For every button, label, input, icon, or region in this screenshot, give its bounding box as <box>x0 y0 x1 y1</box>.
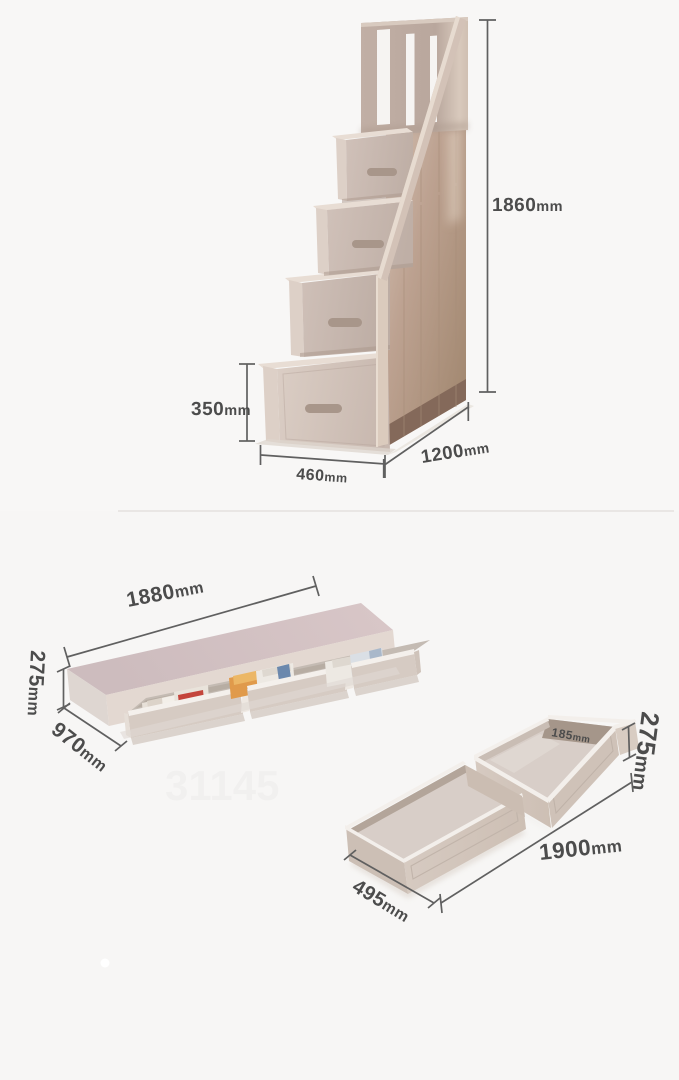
svg-text:1860mm: 1860mm <box>492 195 563 216</box>
svg-text:31145: 31145 <box>165 762 279 809</box>
svg-text:350mm: 350mm <box>191 399 251 420</box>
